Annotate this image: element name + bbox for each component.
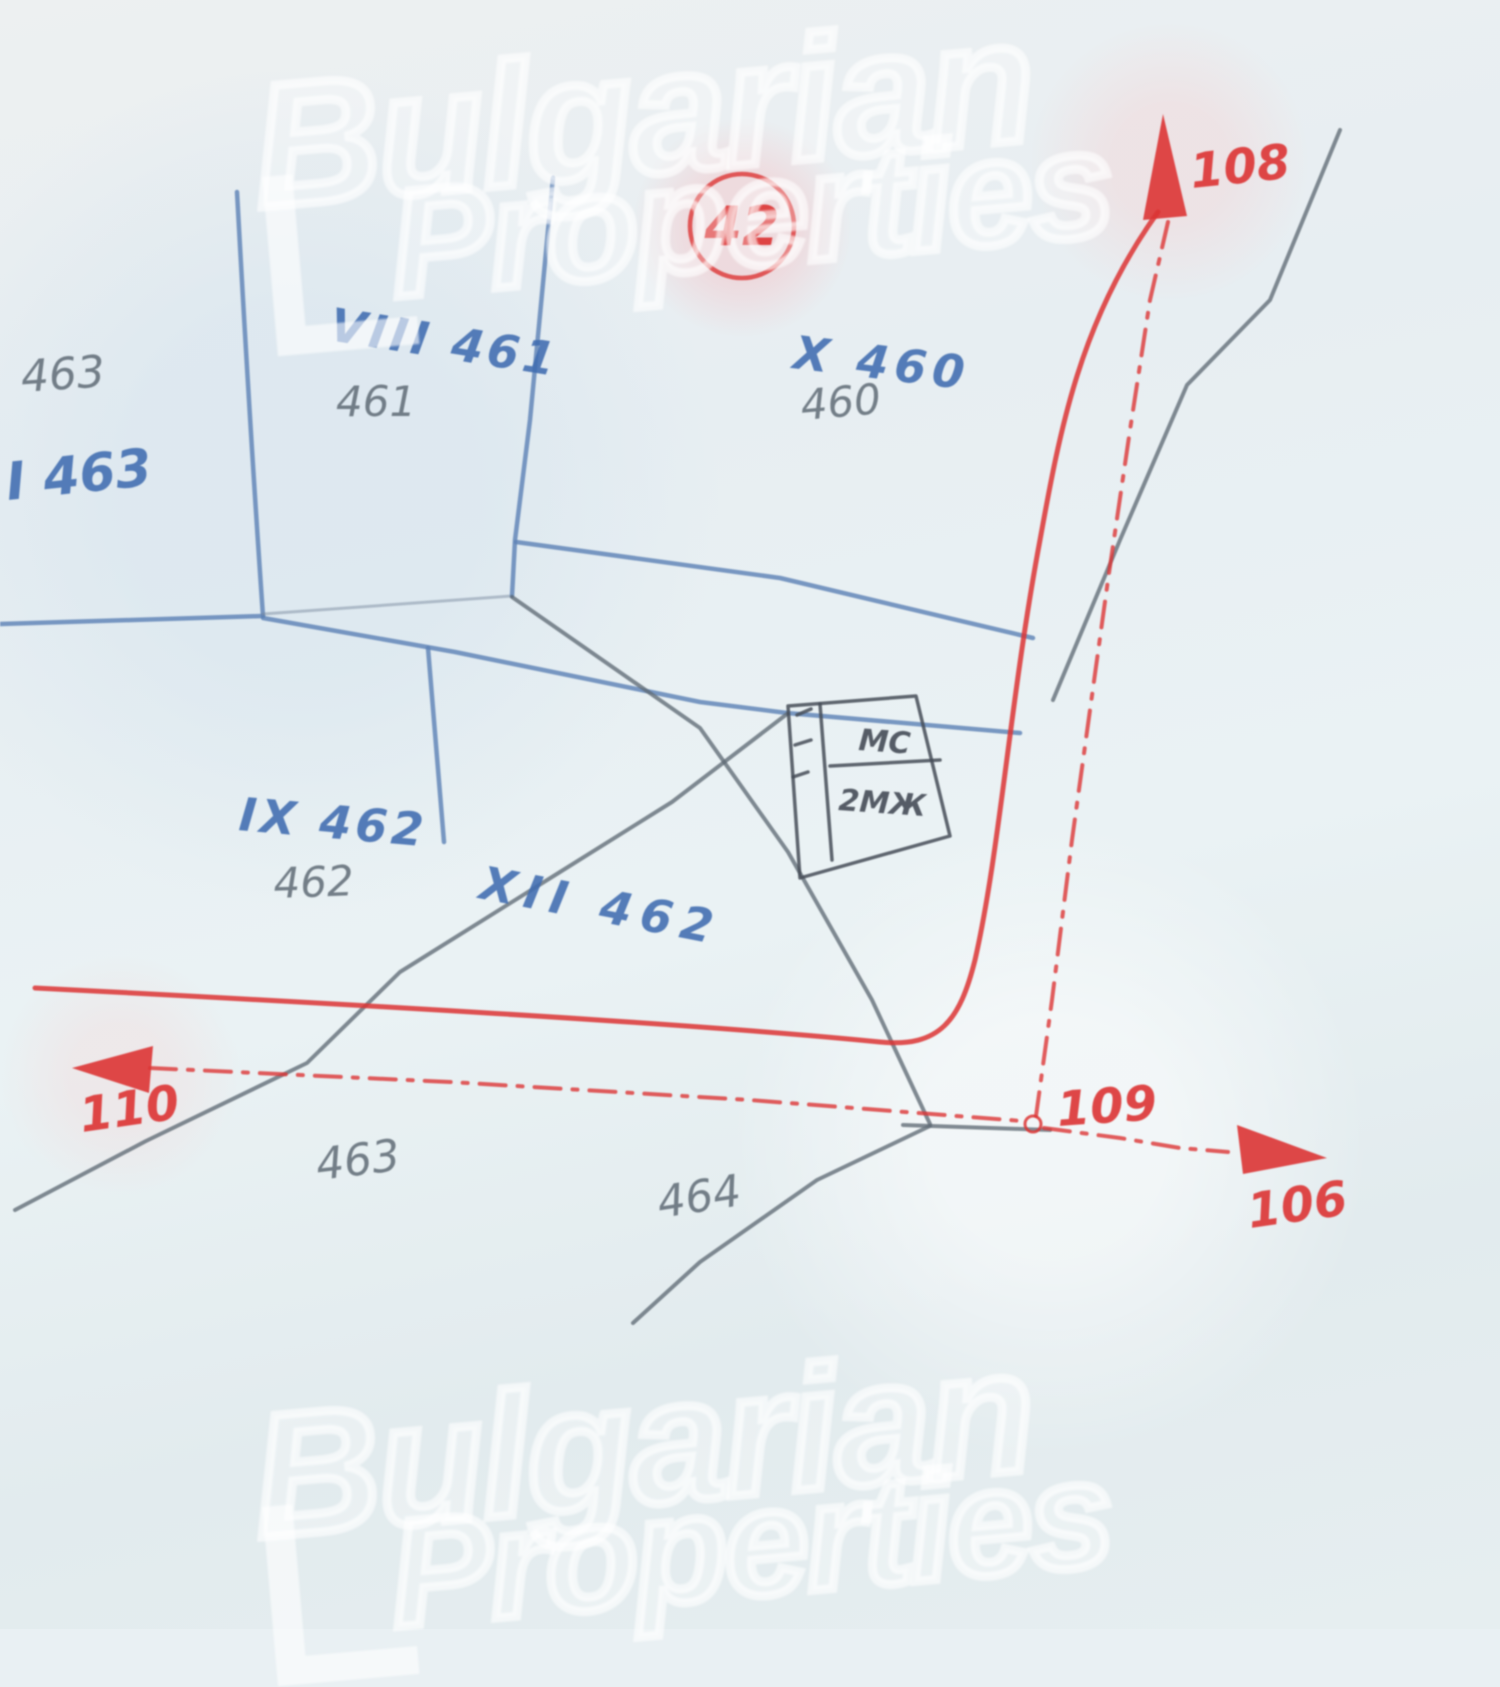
parcel-label-xii462-blue: XII 462 (473, 855, 726, 955)
boundary-west-horizontal (0, 616, 263, 624)
parcel-label-464-pencil: 464 (654, 1165, 745, 1229)
cadastral-sketch-svg: 42 I 463 VIII 461 X 460 IX 462 XII 462 4… (0, 0, 1500, 1629)
southeast-arrow-106-icon (1237, 1125, 1327, 1174)
red-axis-vertical-dashdot (1036, 222, 1168, 1116)
boundary-x-south (516, 542, 1033, 638)
red-axis-west-dashdot (150, 1068, 1022, 1121)
boundary-west-to-center (263, 596, 512, 614)
pencil-diagonal-northeast (1053, 130, 1340, 700)
parcel-label-461-pencil: 461 (336, 377, 416, 426)
survey-point-label-106: 106 (1244, 1170, 1351, 1239)
boundary-west-vertical (237, 192, 263, 616)
survey-point-label-109: 109 (1055, 1075, 1159, 1138)
survey-point-label-108: 108 (1187, 134, 1293, 200)
boundary-ix-north (263, 618, 1020, 733)
parcel-label-ix462-blue: IX 462 (237, 787, 430, 857)
parcel-label-463-top-pencil: 463 (19, 346, 106, 403)
cadastral-sketch-page: 42 I 463 VIII 461 X 460 IX 462 XII 462 4… (0, 0, 1500, 1629)
building-inner-wall-horizontal (830, 760, 940, 766)
building-label-bottom: 2МЖ (837, 783, 928, 824)
boundary-ix-xii-vertical (428, 648, 444, 842)
parcel-label-460-pencil: 460 (799, 374, 883, 430)
boundary-viii-x-vertical (512, 178, 553, 596)
building-annotation-marks (793, 709, 811, 777)
survey-point-label-110: 110 (76, 1074, 183, 1143)
parcel-label-i463-blue: I 463 (3, 438, 154, 513)
parcel-label-viii461-blue: VIII 461 (326, 298, 563, 387)
north-arrow-108-icon (1143, 114, 1187, 220)
building-inner-wall-vertical (820, 704, 832, 860)
parcel-label-462-pencil: 462 (273, 856, 355, 908)
building-label-top: МС (857, 723, 911, 762)
parcel-label-463-bottom-pencil: 463 (313, 1130, 403, 1191)
plot-number-label: 42 (703, 195, 779, 258)
